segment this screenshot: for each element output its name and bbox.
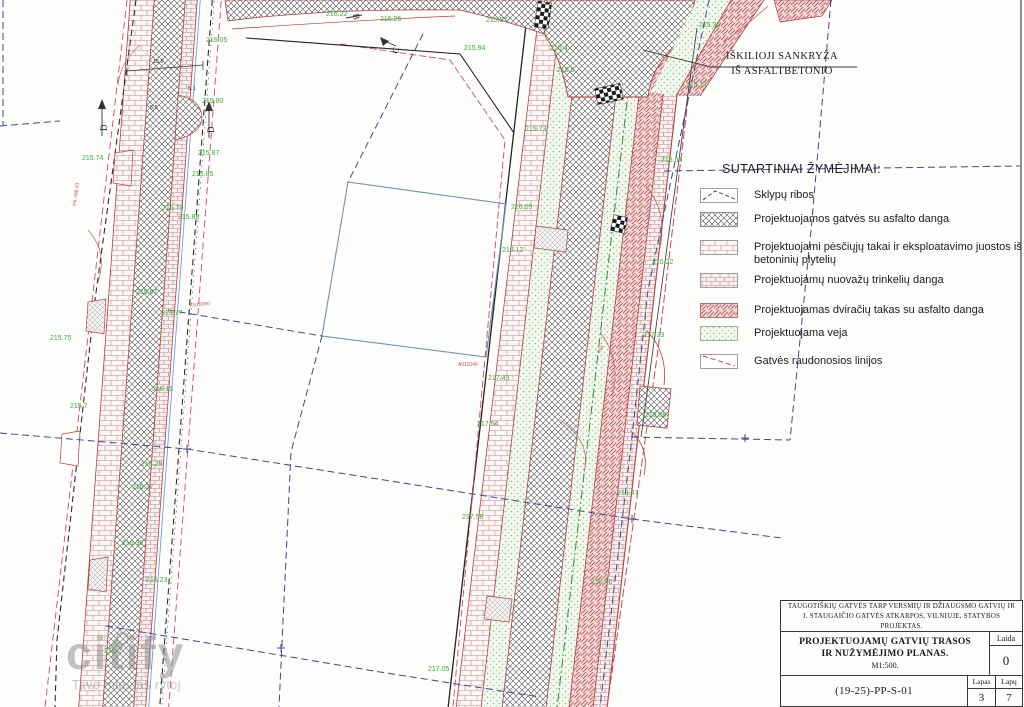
driveway-stub [86, 299, 106, 334]
elevation-label: 218.47 [617, 490, 639, 497]
laida-value: 0 [990, 646, 1022, 675]
left-street-corridor [45, 0, 222, 707]
dimension-label: 5,1 [188, 86, 196, 92]
elevation-label: 215.97 [486, 17, 508, 24]
dimension-label: 5,5 [150, 105, 158, 111]
elevation-label: 215.74 [82, 155, 104, 162]
concrete-tiles-swatch-icon [700, 240, 738, 255]
dimension-label: 15,0 [153, 59, 164, 65]
elevation-label: 215.87 [198, 150, 220, 157]
section-letter: D [206, 126, 216, 133]
legend: SUTARTINIAI ŽYMĖJIMAI: Sklypų ribos Proj… [698, 162, 1024, 369]
elevation-label: 217.49 [488, 375, 510, 382]
red-lines-swatch-icon [700, 354, 738, 369]
elevation-label: 216.22 [652, 259, 674, 266]
boundary-cross-ticks [183, 434, 749, 652]
elevation-label: 215.7 [70, 403, 88, 410]
legend-item-label: Gatvės raudonosios linijos [754, 354, 882, 368]
parcel-dashed [168, 310, 322, 336]
section-letter: B [351, 13, 362, 20]
title-block-project-row: TAUGOTIŠKIŲ GATVĖS TARP VERSMIŲ IR DŽIAU… [781, 601, 1022, 632]
legend-item-bike-path: Projektuojamas dviračių takas su asfalto… [698, 303, 1024, 318]
lapas-label: Lapas [968, 676, 995, 689]
callout-line1: IŠKILIOJI SANKRYŽA [700, 51, 864, 62]
legend-item-label: Projektuojamų nuovažų trinkelių danga [754, 273, 944, 287]
legend-title: SUTARTINIAI ŽYMĖJIMAI: [722, 162, 1024, 176]
elevation-label: 216.22 [326, 11, 348, 18]
elevation-label: 215.4 [550, 45, 568, 52]
scanned-street-plan-sheet: C D D B 216.05215.80215.74215.87215.8521… [0, 0, 1024, 707]
bus-bay [175, 95, 202, 140]
laida-label: Laida [990, 632, 1022, 646]
legend-item-concrete-tiles: Projektuojami pėsčiųjų takai ir eksploat… [698, 240, 1024, 266]
elevation-label: 215.80 [202, 98, 224, 105]
drawing-title-cell: PROJEKTUOJAMŲ GATVIŲ TRASOS IR NUŽYMĖJIM… [781, 632, 990, 675]
legend-item-asphalt-street: Projektuojamos gatvės su asfalto danga [698, 212, 1024, 227]
legend-item-red-lines: Gatvės raudonosios linijos [698, 354, 1024, 369]
legend-item-label: Sklypų ribos [754, 188, 814, 202]
ramp-checker-marker [610, 215, 627, 234]
asphalt-crosshatch-swatch-icon [700, 212, 738, 227]
parcel-dashed [632, 437, 790, 440]
elevation-label: 215.5 [557, 67, 575, 74]
elevation-label: 217.58 [462, 514, 484, 521]
drawing-title-line1: PROJEKTUOJAMŲ GATVIŲ TRASOS [799, 637, 971, 649]
lawn-swatch-icon [700, 326, 738, 341]
legend-item-label: Projektuojamos gatvės su asfalto danga [754, 212, 949, 226]
driveway-stub [88, 557, 108, 592]
elevation-label: 217.54 [477, 421, 499, 428]
elevation-label: 217.23 [643, 332, 665, 339]
bike-path-swatch-icon [700, 303, 738, 318]
elevation-label: 218.08 [645, 412, 667, 419]
lapu-label: Lapų [996, 676, 1022, 689]
lapas-cell: Lapas 3 [968, 676, 996, 706]
elevation-label: 216.26 [380, 16, 402, 23]
station-label: K510090 [190, 301, 211, 309]
elevation-label: 215.77 [161, 310, 183, 317]
document-number: (19-25)-PP-S-01 [781, 676, 968, 706]
elevation-label: 215.73 [525, 126, 547, 133]
legend-item-driveway-pavers: Projektuojamų nuovažų trinkelių danga [698, 273, 1024, 288]
parcel-dashed [0, 121, 60, 126]
elevation-label: 216.23 [146, 577, 168, 584]
driveway-stub [60, 431, 80, 466]
elevation-label: 215.88 [178, 214, 200, 221]
parcel-dashed [279, 336, 322, 707]
laida-cell: Laida 0 [990, 632, 1022, 675]
driveway-pavers-swatch-icon [700, 273, 738, 288]
elevation-label: 218.40 [591, 579, 613, 586]
lapu-cell: Lapų 7 [996, 676, 1022, 706]
legend-item-label: Projektuojamas dviračių takas su asfalto… [754, 303, 984, 317]
legend-item-label: Projektuojami pėsčiųjų takai ir eksploat… [754, 240, 1024, 266]
bike-path-fragment [774, 0, 832, 22]
station-label: PK 496,43 [72, 182, 81, 206]
elevation-label: 215.75 [50, 335, 72, 342]
elevation-label: 216.30 [122, 540, 144, 547]
section-letter: D [99, 124, 109, 131]
elevation-label: 217.05 [428, 666, 450, 673]
elevation-label: 215.79 [162, 205, 184, 212]
elevation-label: 215.94 [464, 45, 486, 52]
elevation-label: 215.30 [699, 22, 721, 29]
survey-parcel-teal [322, 182, 506, 357]
lapas-value: 3 [968, 689, 995, 706]
elevation-label: 215.17 [686, 82, 708, 89]
elevation-label: 216.29 [141, 461, 163, 468]
elevation-label: 216.37 [132, 484, 154, 491]
legend-item-label: Projektuojama veja [754, 326, 848, 340]
drawing-scale: M1:500. [871, 661, 898, 670]
elevation-label: 215.67 [136, 289, 158, 296]
elevation-label: 216.2 [104, 648, 122, 655]
main-street-corridor [340, 0, 700, 707]
title-block: TAUGOTIŠKIŲ GATVĖS TARP VERSMIŲ IR DŽIAU… [780, 600, 1023, 707]
elevation-label: 216.05 [206, 37, 228, 44]
driveway-stub [637, 386, 671, 428]
section-letter: C [390, 46, 401, 54]
lapu-value: 7 [996, 689, 1022, 706]
elevation-label: 216.11 [152, 386, 173, 393]
elevation-label: 216.12 [502, 247, 524, 254]
driveway-stub [113, 150, 133, 186]
drawing-title-line2: IR NUŽYMĖJIMO PLANAS. [799, 649, 971, 661]
elevation-label: 215.85 [192, 171, 214, 178]
legend-item-parcel-boundary: Sklypų ribos [698, 188, 1024, 203]
project-name: TAUGOTIŠKIŲ GATVĖS TARP VERSMIŲ IR DŽIAU… [781, 600, 1022, 632]
parcel-boundary-top [246, 38, 514, 133]
parcel-dashed [348, 34, 423, 182]
parcel-boundary-swatch-icon [700, 188, 738, 203]
legend-item-lawn: Projektuojama veja [698, 326, 1024, 341]
intersection-callout: IŠKILIOJI SANKRYŽA IŠ ASFALTBETONIO [700, 51, 864, 77]
elevation-label: 216.09 [511, 204, 533, 211]
callout-line2: IŠ ASFALTBETONIO [700, 66, 864, 77]
station-label: A511046 [458, 362, 478, 368]
elevation-label: 215.65 [661, 157, 683, 164]
driveway-stub [484, 596, 512, 622]
driveway-stub [534, 226, 568, 252]
